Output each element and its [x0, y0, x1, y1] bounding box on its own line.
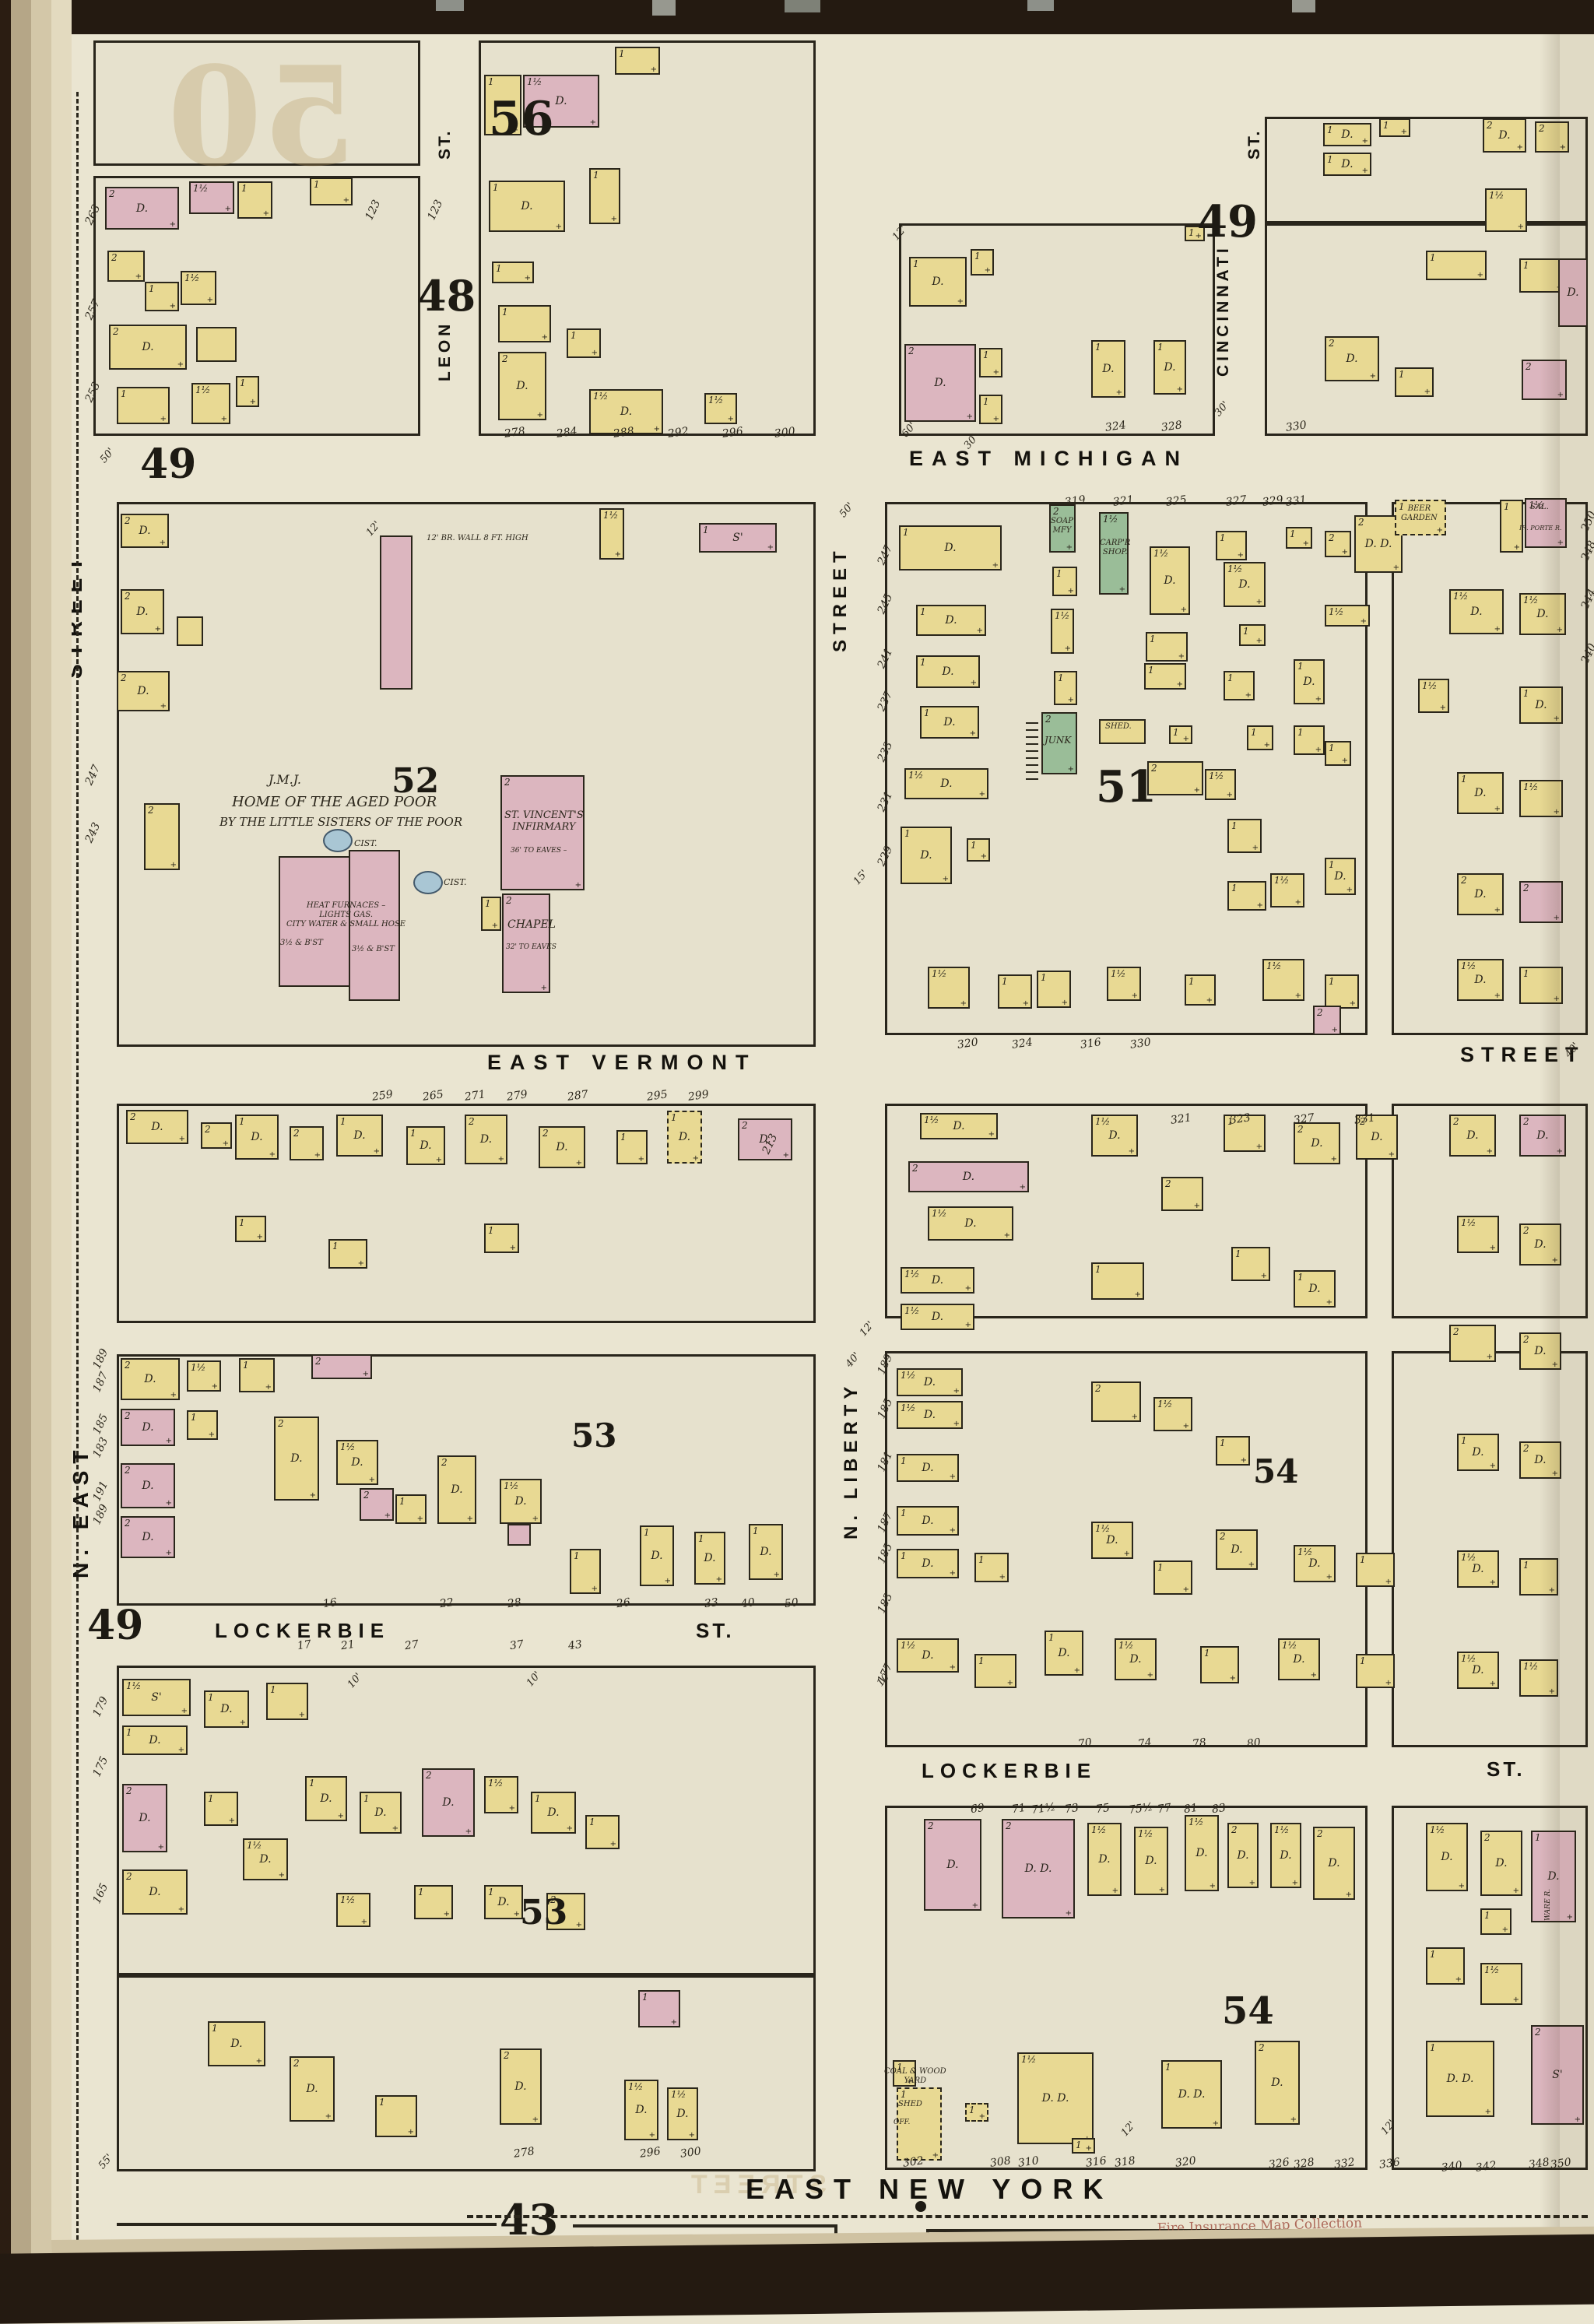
building-corner-mark: + [1567, 1913, 1573, 1922]
building-story-number: 2 [125, 591, 131, 602]
building-corner-mark: + [1065, 644, 1071, 653]
building: 1+ [1379, 118, 1410, 137]
building: 1+D. [360, 1792, 402, 1834]
building-use-label: D. [1328, 1857, 1339, 1869]
bookmark-tab [1292, 0, 1315, 12]
building-corner-mark: + [1393, 563, 1399, 572]
building: 1+ [967, 838, 990, 862]
house-number: 288 [613, 425, 635, 441]
building-corner-mark: + [556, 223, 562, 231]
building: 1+ [498, 305, 551, 342]
building-use-label: D. [620, 405, 632, 418]
building: 1+ [1146, 632, 1188, 662]
building: 1+ [1395, 367, 1434, 397]
building-corner-mark: + [1513, 1996, 1519, 2004]
building: 1+ [1239, 624, 1266, 646]
building-use-label: S' [732, 532, 743, 544]
building-story-number: 2 [1523, 1225, 1529, 1236]
building-story-number: 1 [1048, 1632, 1055, 1643]
building-corner-mark: + [1147, 1671, 1153, 1680]
building-use-label: D. [556, 1141, 567, 1153]
house-number: 71 [1011, 1802, 1027, 1816]
house-number: 33 [704, 1596, 719, 1610]
building-corner-mark: + [178, 1746, 184, 1754]
building: 1+ [979, 395, 1002, 424]
house-number: 50 [784, 1596, 799, 1610]
building-use-label: D. [555, 95, 567, 107]
building-story-number: 1½ [1157, 1399, 1172, 1409]
building: 1+ [1144, 663, 1186, 690]
dimension-note: 12' [858, 1319, 876, 1339]
building-use-label: D. [1470, 606, 1482, 618]
building-story-number: 2 [293, 1128, 300, 1139]
building: 2+D. [908, 1161, 1029, 1192]
building-corner-mark: + [649, 2131, 655, 2140]
building-use-label: D. [1535, 699, 1547, 711]
building-story-number: 1 [753, 1525, 759, 1536]
building-corner-mark: + [1326, 1298, 1332, 1307]
building: 2+D. D. [1002, 1819, 1075, 1919]
building: 1+ [998, 974, 1032, 1009]
building-corner-mark: + [510, 1244, 516, 1252]
building-corner-mark: + [314, 1151, 321, 1160]
building: 1½+D. D. [1017, 2052, 1094, 2144]
building-corner-mark: + [1066, 543, 1073, 552]
building: 2+D. [1483, 118, 1526, 153]
house-number: 185 [90, 1413, 111, 1437]
street-label: N. EAST [68, 1444, 93, 1578]
building-story-number: 1 [1188, 227, 1195, 238]
building-corner-mark: + [1007, 1679, 1013, 1687]
building-corner-mark: + [363, 1370, 369, 1378]
building-use-label: D. [259, 1853, 271, 1866]
building-corner-mark: + [1575, 2115, 1581, 2124]
building-story-number: 1 [974, 251, 981, 262]
building-use-label: D. [1534, 1454, 1546, 1466]
building-story-number: 1½ [1274, 875, 1289, 886]
building-corner-mark: + [1557, 626, 1563, 634]
building-corner-mark: + [1295, 898, 1301, 907]
building-use-label: D. [1231, 1543, 1242, 1556]
building: 2+ [1091, 1381, 1141, 1422]
building: 2+ [1161, 1177, 1203, 1211]
building-corner-mark: + [343, 196, 349, 205]
building-story-number: 1½ [340, 1441, 355, 1452]
building-story-number: 1 [535, 1793, 541, 1804]
building: 2+D. [924, 1819, 981, 1911]
building-use-label: D. [1474, 974, 1486, 986]
building-corner-mark: + [170, 302, 176, 311]
building-use-label: D. [1129, 1653, 1141, 1666]
building-story-number: 2 [125, 1360, 131, 1371]
building: 1½+ [181, 271, 216, 305]
building: 1½+D. [667, 2087, 698, 2140]
building-use-label: D. [1371, 1131, 1382, 1143]
building-use-label: D. [516, 380, 528, 392]
building: 1+D. [899, 525, 1002, 570]
building-story-number: 1 [212, 2023, 218, 2034]
building-story-number: 1½ [1118, 1640, 1133, 1651]
building-corner-mark: + [1068, 696, 1074, 704]
building-corner-mark: + [611, 215, 617, 223]
building-story-number: 2 [1484, 1832, 1490, 1843]
building: 1+ [585, 1815, 620, 1849]
building-story-number: 1 [1523, 688, 1529, 699]
building: 1½+D. [1457, 1652, 1499, 1689]
building-story-number: 2 [1526, 361, 1532, 372]
building-use-label: D. [139, 525, 150, 537]
map-annotation: CIST. [444, 878, 467, 888]
building-story-number: 2 [502, 353, 508, 364]
building: 1+D. [897, 1549, 959, 1578]
building-corner-mark: + [1292, 1879, 1298, 1887]
building-story-number: 1 [191, 1412, 197, 1423]
building [177, 616, 203, 646]
building-story-number: 1 [642, 1992, 648, 2003]
building-story-number: 1½ [1523, 595, 1538, 606]
building-story-number: 1 [1327, 125, 1333, 135]
building-use-label: D. [1346, 353, 1357, 365]
building-story-number: 1½ [1095, 1116, 1110, 1127]
building: 1+ [236, 376, 259, 407]
street-label: ST. [696, 1619, 735, 1643]
building: 1½+ [599, 508, 624, 560]
dimension-note: 15' [851, 868, 870, 887]
building-corner-mark: + [1256, 637, 1262, 645]
house-number: 26 [616, 1596, 631, 1610]
building-use-label: D. [149, 1734, 160, 1747]
building-corner-mark: + [950, 1663, 956, 1672]
map-line [573, 2224, 836, 2227]
building-corner-mark: + [1342, 548, 1348, 556]
building-corner-mark: + [181, 1707, 188, 1715]
building-corner-mark: + [993, 415, 999, 423]
building-story-number: 1 [1504, 501, 1510, 512]
building: 2+S' [1531, 2025, 1584, 2125]
house-number: 187 [90, 1371, 111, 1395]
building-use-label: D. [251, 1131, 262, 1143]
building-use-label: D. [924, 1409, 936, 1421]
building-story-number: 1 [488, 1225, 494, 1236]
building-story-number: 1 [1251, 727, 1257, 738]
building: 1+ [145, 282, 179, 311]
building-corner-mark: + [590, 118, 596, 127]
building: 2+ [1522, 360, 1567, 400]
building-story-number: 2 [125, 1410, 131, 1421]
building-story-number: 1 [418, 1887, 424, 1897]
building-story-number: 1 [1430, 2042, 1436, 2053]
building: 1½+ [928, 967, 970, 1009]
building-use-label: D. [1567, 286, 1578, 299]
building-story-number: 2 [315, 1356, 321, 1367]
building-corner-mark: + [1331, 1155, 1337, 1164]
building-story-number: 2 [126, 1871, 132, 1882]
building-corner-mark: + [225, 205, 231, 213]
building: 1+ [492, 262, 534, 283]
building: 1½+ [1485, 188, 1527, 232]
bleed-through-ghost-text: 50 [167, 37, 357, 197]
building-corner-mark: + [279, 1871, 285, 1880]
building-corner-mark: + [716, 1575, 722, 1584]
building-story-number: 2 [1461, 875, 1467, 886]
building: 2+D. [122, 1869, 188, 1915]
building: 1+D. [531, 1792, 576, 1834]
building-story-number: 1½ [1282, 1640, 1297, 1651]
building-corner-mark: + [1459, 1882, 1465, 1890]
building: 1+D. [640, 1525, 674, 1586]
building: 1½+ [191, 383, 230, 424]
building-use-label: D. [1547, 1870, 1559, 1883]
building-story-number: 1 [1095, 342, 1101, 353]
building: 1+ [1091, 1262, 1144, 1300]
building-corner-mark: + [1178, 652, 1185, 661]
building-story-number: 2 [1453, 1326, 1459, 1337]
building-story-number: 1 [1235, 1248, 1241, 1259]
building-corner-mark: + [1455, 1975, 1462, 1984]
building: 2+D. [1294, 1122, 1340, 1164]
building-story-number: 1½ [628, 2081, 643, 2092]
building-corner-mark: + [638, 1155, 644, 1164]
building: 1½+D. [243, 1838, 288, 1880]
building-corner-mark: + [1245, 691, 1252, 700]
building: 1+D. [204, 1690, 249, 1728]
building-use-label: D. [922, 1649, 933, 1662]
building-corner-mark: + [1560, 143, 1566, 152]
building-use-label: D. [420, 1139, 431, 1152]
building: 1+D. [1457, 772, 1504, 814]
building-story-number: 1 [644, 1527, 650, 1538]
building: 1+ [1519, 967, 1563, 1004]
sheet-number: 53 [520, 1893, 567, 1933]
building-use-label: D. [944, 542, 956, 554]
building: 1½+D. [1150, 546, 1190, 615]
house-number: 247 [83, 764, 103, 788]
building-corner-mark: + [1361, 617, 1367, 626]
building: 1½+D. [1091, 1115, 1138, 1157]
building-corner-mark: + [1487, 1147, 1493, 1156]
building-corner-mark: + [1183, 735, 1189, 743]
building-corner-mark: + [179, 1135, 185, 1143]
building: 1+ [1480, 1908, 1511, 1935]
building-story-number: 1 [1243, 626, 1249, 637]
house-number: 80 [1246, 1736, 1262, 1750]
building-corner-mark: + [257, 1233, 263, 1241]
building-corner-mark: + [1385, 1679, 1392, 1687]
house-number: 316 [1080, 1036, 1102, 1051]
dimension-note: 50' [98, 446, 117, 465]
building: 1½+D. [1457, 1550, 1499, 1588]
building-corner-mark: + [1518, 223, 1524, 231]
building-story-number: 1½ [1266, 960, 1281, 971]
map-annotation: HEAT FURNACES – LIGHTS GAS. CITY WATER &… [286, 901, 406, 929]
building-story-number: 1 [593, 170, 599, 181]
building-story-number: 1 [1290, 528, 1296, 539]
building-use-label: D. D. [1042, 2092, 1069, 2105]
building-story-number: 2 [130, 1111, 136, 1122]
building-story-number: 2 [126, 1785, 132, 1796]
building-story-number: 1½ [488, 1778, 503, 1789]
building-story-number: 1½ [1461, 1552, 1476, 1563]
building-corner-mark: + [1552, 1469, 1558, 1478]
sheet-number: 56 [489, 92, 554, 146]
building: 1+ [237, 181, 272, 219]
building-corner-mark: + [1552, 1360, 1558, 1369]
building-corner-mark: + [1490, 1578, 1496, 1587]
building-corner-mark: + [1342, 757, 1348, 765]
building: 1½+D. [1457, 959, 1504, 1001]
building: 1½+ [1325, 605, 1370, 627]
building: 1+D. [1519, 686, 1563, 724]
building-story-number: 2 [928, 1820, 934, 1831]
building-corner-mark: + [374, 1147, 380, 1156]
building-use-label: D. [142, 341, 153, 353]
building-story-number: 1 [1150, 634, 1156, 644]
map-annotation: ST. VINCENT'S INFIRMARY [504, 809, 584, 834]
building-corner-mark: + [953, 1420, 960, 1428]
building-story-number: 1½ [932, 1208, 946, 1219]
building: 1½+ [1457, 1216, 1499, 1253]
building: 1+ [395, 1494, 427, 1524]
building-story-number: 2 [1523, 1116, 1529, 1127]
sanborn-map-page: { "colors":{"yellow":"#e8d993","pink":"#… [0, 0, 1594, 2294]
building: 1+D. [1457, 1434, 1499, 1471]
building: 1+ [1227, 881, 1266, 911]
building-use-label: D. [1472, 1446, 1483, 1459]
building-use-label: D. D. [1447, 2073, 1474, 2085]
building-use-label: D. [932, 1311, 943, 1323]
house-number: 265 [422, 1088, 444, 1104]
house-number: 21 [340, 1638, 356, 1652]
building-use-label: D. [442, 1796, 454, 1809]
house-number: 17 [297, 1638, 312, 1652]
building: 2+D. [1216, 1529, 1258, 1570]
building-corner-mark: + [575, 881, 581, 890]
building-corner-mark: + [1206, 996, 1213, 1005]
building: 1+ [1037, 971, 1071, 1008]
map-annotation: OFF. [894, 2119, 910, 2127]
sheet-number: 53 [571, 1417, 616, 1455]
building: 1+ [1200, 1646, 1239, 1683]
building-story-number: 1 [1157, 342, 1164, 353]
building: 1+ [204, 1792, 238, 1826]
house-number: 40 [740, 1596, 756, 1610]
building-corner-mark: + [1119, 585, 1125, 594]
building: 1½+ [1270, 873, 1304, 907]
building-corner-mark: + [1194, 1202, 1200, 1210]
building-story-number: 1½ [1461, 960, 1476, 971]
building-corner-mark: + [576, 1921, 582, 1929]
building-corner-mark: + [967, 412, 973, 421]
building-use-label: D. [290, 1452, 302, 1465]
building-use-label: D. [1303, 676, 1315, 688]
building: 1+D. [916, 655, 980, 688]
building-corner-mark: + [1183, 1585, 1189, 1594]
building-use-label: D. [547, 1806, 559, 1819]
building: 2+D. [121, 1516, 175, 1558]
building-story-number: 1 [1227, 672, 1234, 683]
building: 1+ [974, 1654, 1016, 1688]
building-story-number: 1 [703, 525, 709, 535]
street-label: LOCKERBIE [922, 1759, 1097, 1783]
building-corner-mark: + [1514, 543, 1520, 552]
building-corner-mark: + [1135, 1290, 1141, 1299]
building-corner-mark: + [671, 2018, 677, 2027]
building-corner-mark: + [1315, 746, 1322, 754]
building-story-number: 2 [293, 2058, 300, 2069]
building: 1+ [1054, 671, 1077, 705]
building-use-label: D. [142, 1480, 153, 1492]
building-corner-mark: + [932, 2151, 939, 2160]
building-story-number: 1 [363, 1793, 370, 1804]
building-use-label: D. [142, 1531, 153, 1543]
building: 1½+D. [904, 768, 988, 799]
building: 1+ [1231, 1247, 1270, 1281]
building-story-number: 2 [1317, 1828, 1323, 1839]
building-story-number: 2 [506, 895, 512, 906]
building: 2+D. [465, 1115, 507, 1164]
building-corner-mark: + [1023, 999, 1029, 1008]
building-story-number: 1½ [1021, 2054, 1036, 2065]
house-number: 165 [90, 1882, 111, 1906]
building: 1+ [1286, 527, 1312, 549]
building-corner-mark: + [207, 296, 213, 304]
building-story-number: 1 [978, 1655, 985, 1666]
house-number: 299 [687, 1088, 710, 1104]
building: 2+D. [1325, 336, 1379, 381]
building: 1+ [310, 177, 353, 205]
building: 2+D. [1480, 1831, 1522, 1896]
building-story-number: 1 [1523, 1560, 1529, 1571]
building-corner-mark: + [338, 1812, 344, 1820]
building-story-number: 1½ [1297, 1546, 1312, 1557]
east-new-york-dashed-line [467, 2215, 1588, 2218]
building-story-number: 1 [1297, 661, 1304, 672]
building-corner-mark: + [1230, 1674, 1236, 1683]
building: 2+D. [121, 1358, 180, 1400]
building-use-label: D. [1102, 363, 1114, 375]
house-number: 191 [90, 1480, 111, 1504]
building: 1+ [1216, 531, 1247, 560]
sheet-number: 49 [1197, 196, 1258, 247]
building: 2+ [1535, 121, 1569, 153]
building: 1+ [266, 1683, 308, 1720]
building-story-number: 2 [1358, 517, 1364, 528]
building-use-label: D. [1341, 158, 1353, 170]
building: 1½+D. [1087, 1823, 1122, 1896]
building-corner-mark: + [1346, 886, 1353, 894]
building-story-number: 1 [208, 1692, 214, 1703]
building-use-label: D. [1280, 1849, 1291, 1862]
building-story-number: 1 [1430, 1949, 1436, 1960]
building: 1+ [414, 1885, 453, 1919]
building-corner-mark: + [1362, 167, 1368, 175]
building: 1+D. [489, 181, 565, 232]
building-corner-mark: + [1238, 551, 1244, 560]
building-corner-mark: + [1490, 1462, 1496, 1470]
building-use-label: D. [1293, 1653, 1304, 1666]
building-use-label: D. [1466, 1129, 1478, 1142]
building-use-label: D. [922, 1515, 933, 1527]
building-story-number: 1½ [191, 1362, 205, 1373]
building-corner-mark: + [1557, 1147, 1563, 1156]
building-corner-mark: + [1494, 805, 1501, 813]
building-story-number: 1 [1523, 968, 1529, 979]
building-use-label: D. [137, 685, 149, 697]
building-story-number: 1 [502, 307, 508, 318]
building-use-label: D. [946, 1859, 958, 1871]
map-annotation: BEER GARDEN [1401, 504, 1438, 523]
building-story-number: 2 [1523, 883, 1529, 893]
